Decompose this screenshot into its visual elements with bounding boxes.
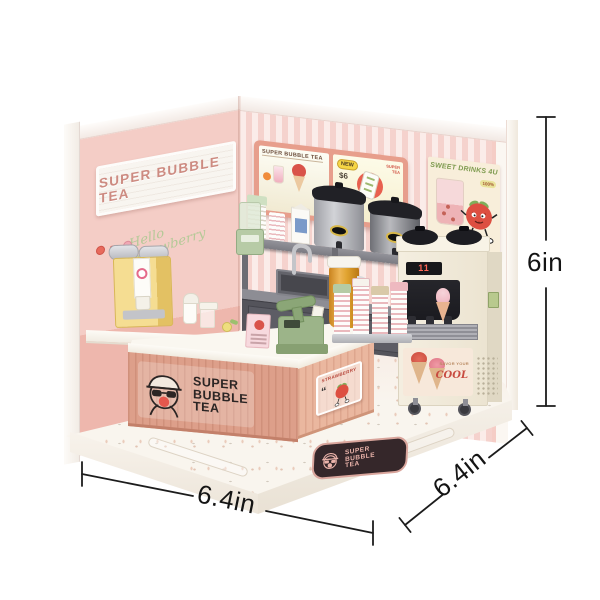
strawberry-plaque: STRAWBERRY “ <box>316 360 362 416</box>
counter-logo-text: SUPER BUBBLE TEA <box>193 375 248 418</box>
machine-lid <box>446 229 482 245</box>
mat-mascot-icon <box>319 448 342 474</box>
icecream-cone-icon <box>436 302 450 322</box>
menu-title: SUPER BUBBLE TEA <box>262 149 323 163</box>
menu-new-badge: NEW <box>337 159 358 171</box>
sealer-cup <box>135 296 150 311</box>
menu-price: $6 <box>339 171 348 181</box>
faucet-icon <box>286 238 326 283</box>
cup-tray <box>332 282 412 344</box>
caster-wheel <box>458 403 471 416</box>
menu-cone-icon <box>293 175 305 192</box>
menu-price-dot <box>263 172 271 181</box>
soft-serve-machine-cart: 11 SAVOR YOUR COOL <box>398 236 504 416</box>
cup-stack <box>334 292 350 336</box>
cup-stack <box>353 286 369 336</box>
cup-sealing-machine <box>106 243 181 337</box>
cart-side-sticker <box>488 292 499 308</box>
cart-front-sticker: SAVOR YOUR COOL <box>403 348 473 396</box>
tray-base <box>332 334 412 343</box>
counter-logo: SUPER BUBBLE TEA <box>138 361 254 428</box>
left-wall-frame <box>64 122 80 465</box>
caster-wheel <box>408 402 421 415</box>
menu-drink-icon <box>273 165 284 184</box>
register-screen <box>284 320 300 328</box>
dimension-height-label: 6in <box>527 247 563 278</box>
machine-display: 11 <box>406 262 442 275</box>
cup-stack <box>269 212 285 242</box>
cup-stack <box>372 294 388 336</box>
product-photo: SUPER BUBBLE TEA Hello Strawberry SUPER … <box>0 0 600 600</box>
pitcher-lid <box>327 256 361 268</box>
glass-jar <box>200 306 215 328</box>
sticker-main-text: COOL <box>436 370 468 381</box>
cash-register <box>276 300 330 354</box>
poster-title: SWEET DRINKS 4U <box>428 161 500 177</box>
vent-grille <box>476 356 498 396</box>
blender-base <box>236 229 264 255</box>
mascot-icon <box>140 363 188 420</box>
counter-mini-sign <box>245 313 271 348</box>
machine-lid <box>402 229 438 245</box>
floor-mat: SUPER BUBBLE TEA <box>311 436 409 481</box>
blender <box>236 202 266 260</box>
poster-badge: 100% <box>480 180 496 189</box>
mat-text: SUPER BUBBLE TEA <box>345 446 375 470</box>
plaque-strawberry-icon <box>332 376 352 409</box>
sticker-sub-text: SAVOR YOUR <box>439 361 469 366</box>
dimension-depth-label: 6.4in <box>427 443 492 504</box>
plaque-quote: “ <box>321 385 327 399</box>
domed-cup <box>183 300 197 324</box>
register-base <box>276 344 328 354</box>
menu-brand: SUPER TEA <box>386 164 400 175</box>
right-wall-outer-edge <box>506 120 518 410</box>
lemon-garnish <box>222 322 232 332</box>
sealer-base <box>123 309 165 319</box>
blender-jar <box>239 202 261 230</box>
cup-stack <box>391 290 407 336</box>
